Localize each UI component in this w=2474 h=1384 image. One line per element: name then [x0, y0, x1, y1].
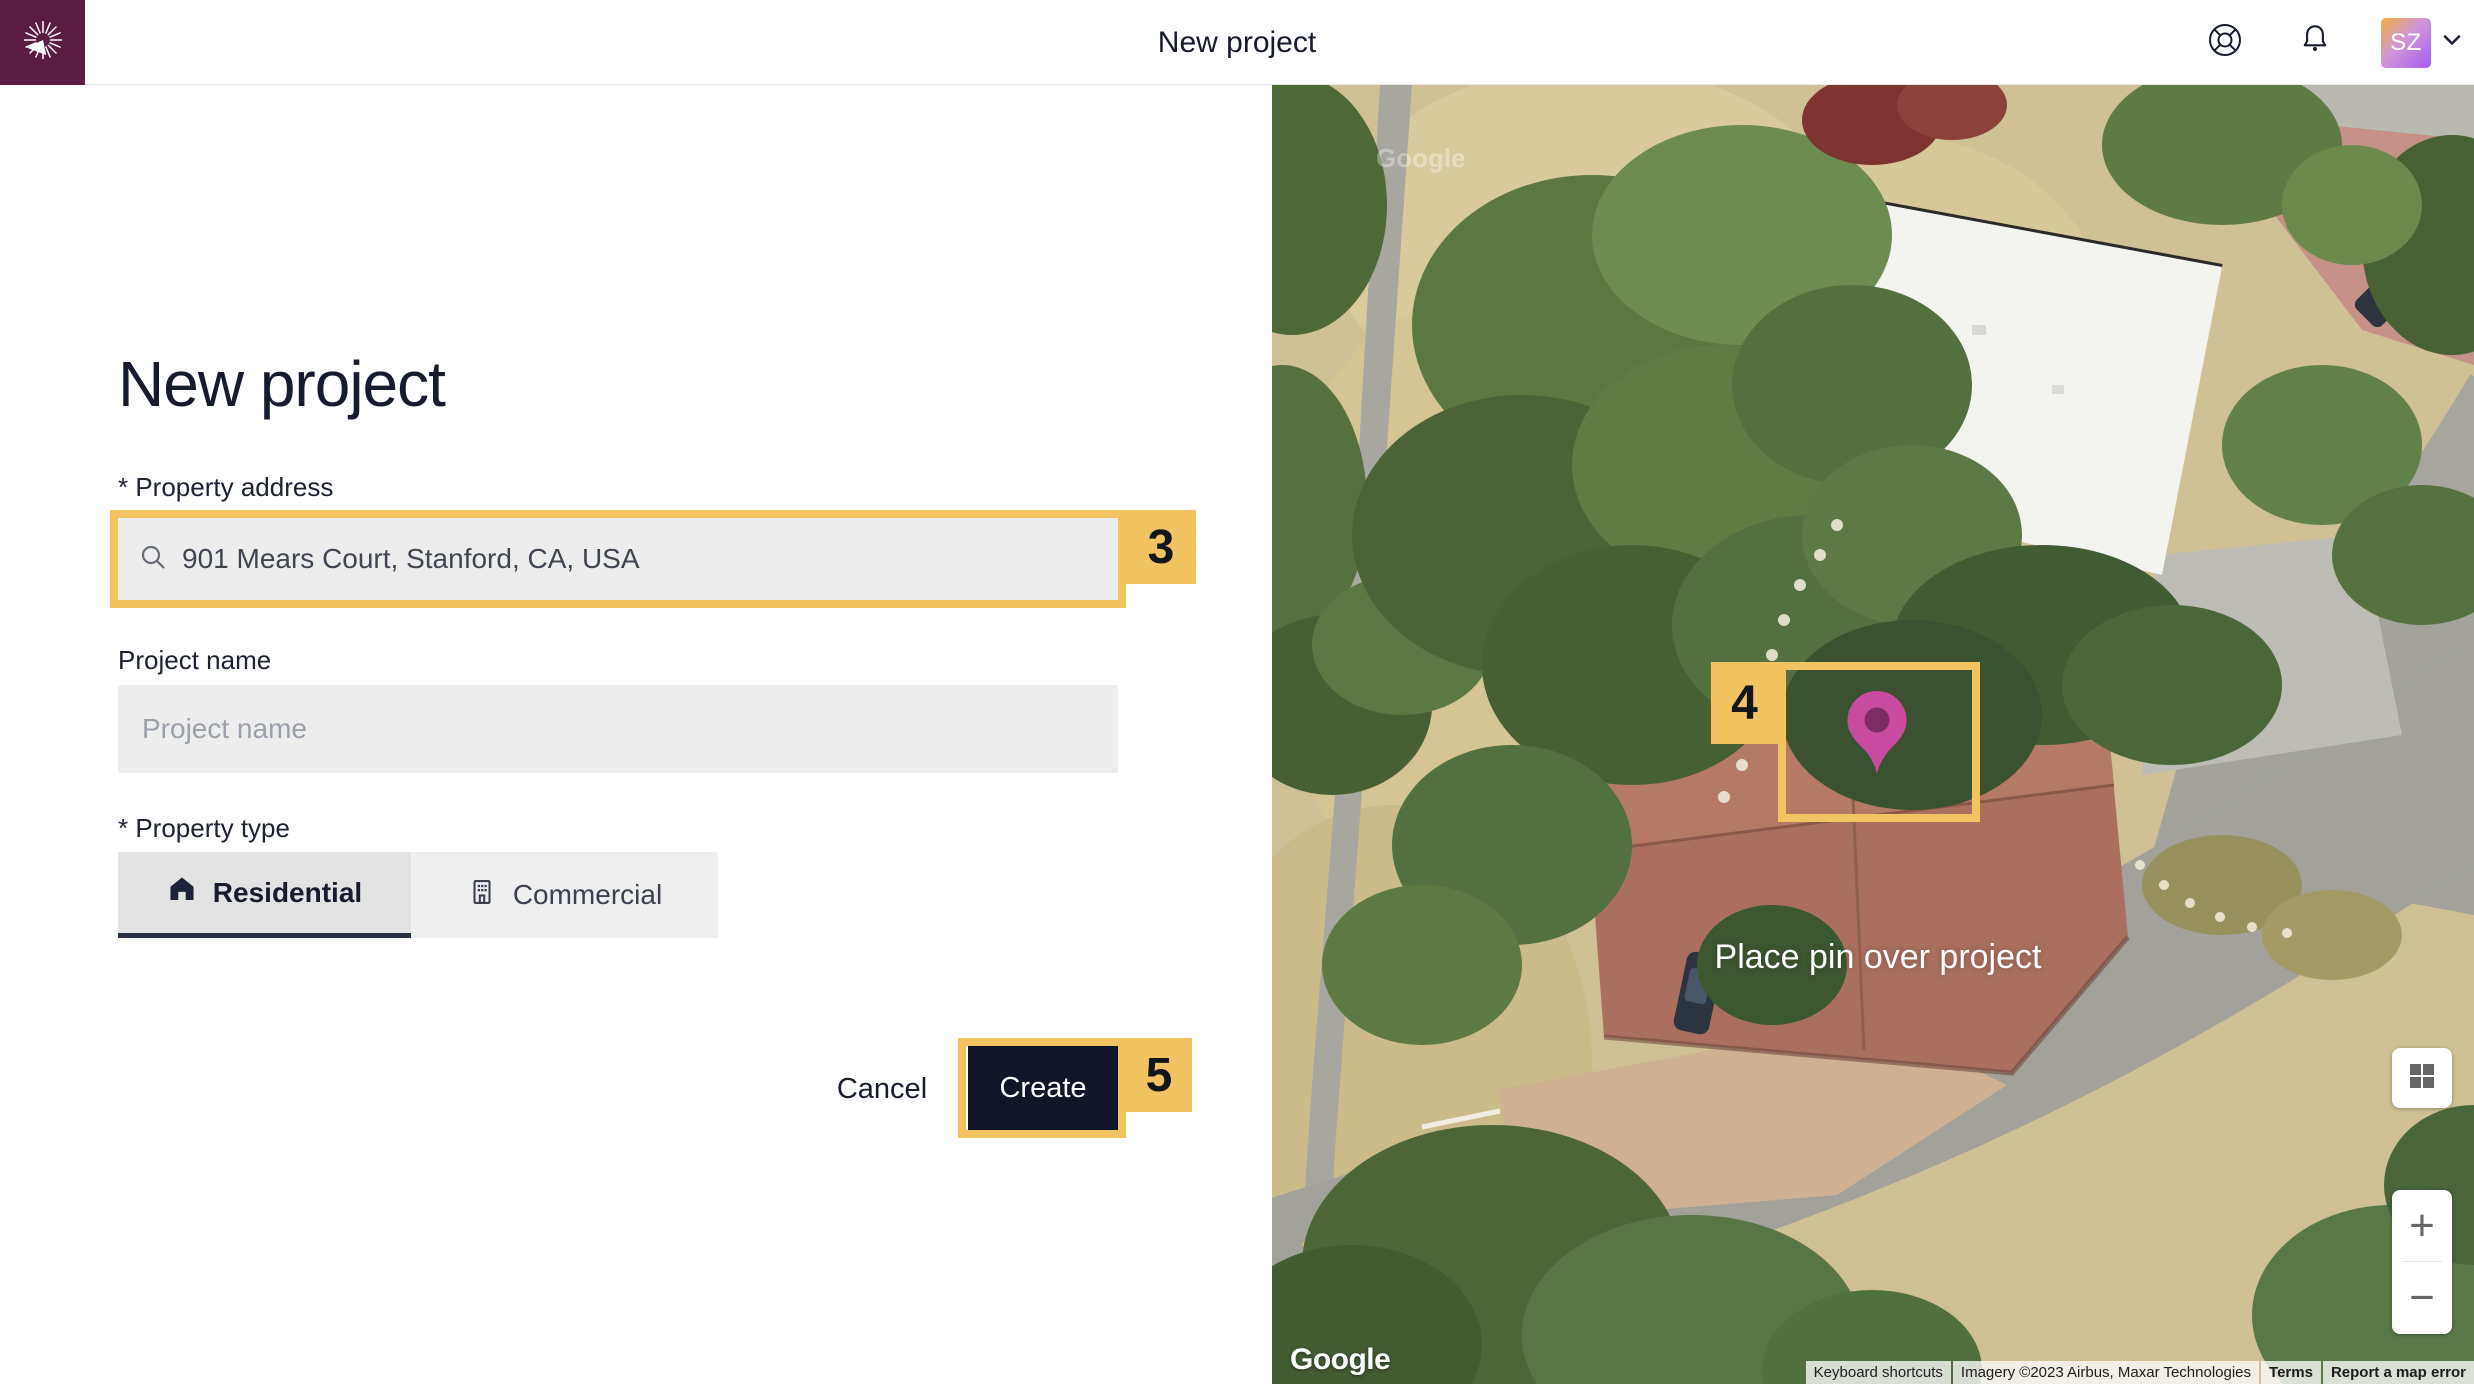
- annotation-step-5: 5: [1126, 1038, 1192, 1112]
- report-map-error-link[interactable]: Report a map error: [2323, 1361, 2474, 1384]
- project-name-input[interactable]: [118, 685, 1118, 773]
- avatar[interactable]: SZ: [2381, 18, 2431, 68]
- help-button[interactable]: [2205, 20, 2245, 65]
- tiles-icon: [2408, 1062, 2436, 1095]
- google-logo: Google: [1290, 1343, 1390, 1377]
- map-type-button[interactable]: [2392, 1048, 2452, 1108]
- topbar: New project SZ: [0, 0, 2474, 85]
- zoom-out-button[interactable]: −: [2392, 1262, 2452, 1333]
- property-address-input-wrap[interactable]: [118, 518, 1118, 600]
- imagery-credit: Imagery ©2023 Airbus, Maxar Technologies: [1953, 1361, 2259, 1384]
- property-type-label: * Property type: [118, 813, 290, 844]
- map-watermark: Google: [1376, 143, 1466, 174]
- search-icon: [138, 542, 168, 577]
- zoom-control: + −: [2392, 1190, 2452, 1334]
- terms-link[interactable]: Terms: [2261, 1361, 2321, 1384]
- lifebuoy-icon: [2205, 20, 2245, 65]
- page-title: New project: [0, 0, 2474, 85]
- chevron-down-icon: [2442, 33, 2462, 52]
- property-type-toggle: Residential Commercial: [118, 852, 718, 938]
- zoom-in-button[interactable]: +: [2392, 1190, 2452, 1261]
- bell-icon: [2295, 20, 2335, 65]
- commercial-tab-label: Commercial: [513, 879, 662, 911]
- new-project-form-panel: New project * Property address Project n…: [0, 85, 1272, 1384]
- residential-tab[interactable]: Residential: [118, 852, 411, 938]
- map-pin[interactable]: [1846, 689, 1908, 777]
- place-pin-hint: Place pin over project: [1578, 938, 2178, 977]
- account-menu-chevron[interactable]: [2442, 33, 2462, 52]
- cancel-button[interactable]: Cancel: [830, 1068, 934, 1110]
- form-heading: New project: [118, 347, 445, 421]
- building-icon: [467, 877, 497, 914]
- property-address-label: * Property address: [118, 472, 333, 503]
- notifications-button[interactable]: [2295, 20, 2335, 65]
- create-button[interactable]: Create: [968, 1046, 1118, 1130]
- property-address-input[interactable]: [182, 543, 1098, 575]
- commercial-tab[interactable]: Commercial: [411, 852, 718, 938]
- house-icon: [167, 874, 197, 911]
- annotation-step-3: 3: [1126, 510, 1196, 584]
- satellite-map[interactable]: Google 4 Place pin over project + − Goog…: [1272, 85, 2474, 1384]
- keyboard-shortcuts-link[interactable]: Keyboard shortcuts: [1806, 1361, 1951, 1384]
- project-name-label: Project name: [118, 645, 271, 676]
- map-attribution: Keyboard shortcuts Imagery ©2023 Airbus,…: [1804, 1361, 2474, 1384]
- residential-tab-label: Residential: [213, 877, 362, 909]
